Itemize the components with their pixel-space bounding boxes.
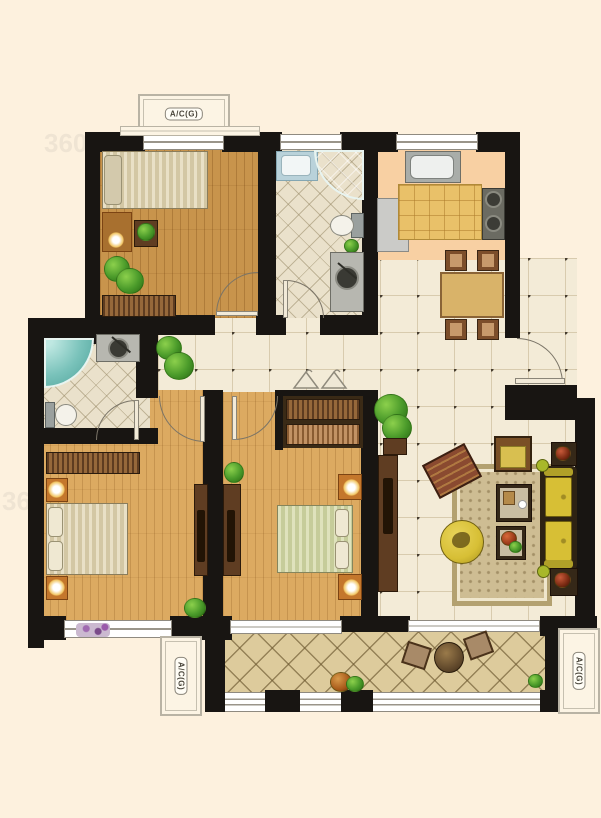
- sofa-armrest: [544, 468, 573, 476]
- wardrobe-shelf: [286, 399, 360, 420]
- toilet-bowl: [55, 404, 77, 426]
- plant-icon: [344, 239, 359, 253]
- plant-icon: [509, 541, 522, 553]
- ac-platform-label: A/C(G): [175, 657, 188, 695]
- plant-icon: [528, 674, 543, 688]
- wall: [575, 398, 595, 632]
- window-bedroom-2: [230, 620, 342, 634]
- door-leaf: [232, 396, 237, 440]
- wall: [28, 318, 44, 648]
- ac-platform-label: A/C(G): [573, 652, 586, 690]
- throw-pillow: [537, 565, 550, 578]
- lamp: [48, 481, 65, 498]
- wall: [320, 315, 378, 335]
- chair-cushion: [450, 323, 462, 336]
- kitchen-sink-basin: [410, 155, 454, 179]
- ac-platform-base: [120, 126, 260, 136]
- pillow: [335, 509, 349, 537]
- dining-table: [440, 272, 504, 318]
- wall: [361, 390, 378, 622]
- balcony-rail-window: [205, 692, 567, 712]
- tv-icon: [197, 510, 205, 562]
- flower-box: [76, 623, 110, 637]
- bathtub-basin: [281, 155, 311, 176]
- lamp: [343, 479, 360, 496]
- throw-pillow: [536, 459, 549, 472]
- cup-icon: [518, 500, 527, 509]
- wall: [44, 616, 66, 640]
- door-leaf: [200, 396, 205, 442]
- toilet-bowl: [330, 215, 354, 236]
- kitchen-counter: [398, 184, 482, 240]
- sofa-cushion: [545, 521, 572, 561]
- floor-plan: 360 360 360 A/C(G): [0, 0, 601, 818]
- ac-platform-left: A/C(G): [160, 636, 202, 716]
- pillow: [48, 541, 63, 571]
- wall: [258, 132, 276, 335]
- balcony-post: [265, 690, 300, 712]
- chair-cushion: [500, 446, 526, 468]
- dining-chair: [477, 319, 499, 340]
- pillow: [104, 155, 122, 205]
- tv-icon: [227, 510, 235, 562]
- wall: [205, 628, 225, 698]
- wardrobe-master: [46, 452, 140, 474]
- burner-icon: [485, 191, 502, 208]
- flower-icon: [554, 572, 571, 588]
- window-kitchen: [396, 134, 478, 150]
- balcony-table: [434, 642, 464, 673]
- balcony-post: [205, 692, 225, 712]
- plant-icon: [164, 352, 194, 380]
- ac-platform-label: A/C(G): [165, 108, 203, 121]
- door-leaf: [216, 311, 258, 316]
- toilet-tank: [45, 402, 55, 428]
- wall: [505, 385, 577, 420]
- window-bathroom-top: [280, 134, 342, 150]
- wall: [85, 132, 100, 335]
- door-leaf: [134, 400, 139, 440]
- wall: [256, 315, 286, 335]
- pillow: [48, 507, 63, 537]
- entrance-door-leaf: [515, 378, 565, 384]
- dining-chair: [477, 250, 499, 271]
- door-leaf: [283, 280, 288, 318]
- pillow: [335, 541, 349, 569]
- plant-icon: [224, 462, 244, 483]
- sofa-cushion: [545, 477, 572, 517]
- chair-cushion: [450, 254, 462, 267]
- wardrobe-top-bedroom: [102, 295, 176, 317]
- clothes-hanger-icon: [292, 368, 350, 390]
- plant-icon: [184, 598, 206, 618]
- lamp: [343, 579, 360, 596]
- watermark: 360: [44, 128, 87, 159]
- wardrobe-shelf: [286, 424, 360, 445]
- flower-icon: [555, 446, 571, 461]
- ac-platform-right: A/C(G): [558, 628, 600, 714]
- chair-cushion: [482, 254, 494, 267]
- burner-icon: [485, 215, 502, 232]
- tv-icon: [383, 478, 393, 534]
- wall: [362, 132, 378, 335]
- dining-chair: [445, 250, 467, 271]
- plant-icon: [137, 223, 155, 241]
- balcony-sliding-door: [408, 620, 540, 632]
- window-bedroom-top: [143, 134, 224, 150]
- wall: [505, 132, 520, 338]
- plant-pot: [383, 438, 407, 455]
- chair-cushion: [482, 323, 494, 336]
- dining-chair: [445, 319, 467, 340]
- balcony-post: [341, 690, 373, 712]
- lamp: [48, 579, 65, 596]
- lamp: [108, 232, 124, 248]
- book-icon: [503, 491, 515, 505]
- plant-icon: [346, 676, 364, 692]
- wall: [340, 616, 410, 632]
- plant-icon: [116, 268, 144, 294]
